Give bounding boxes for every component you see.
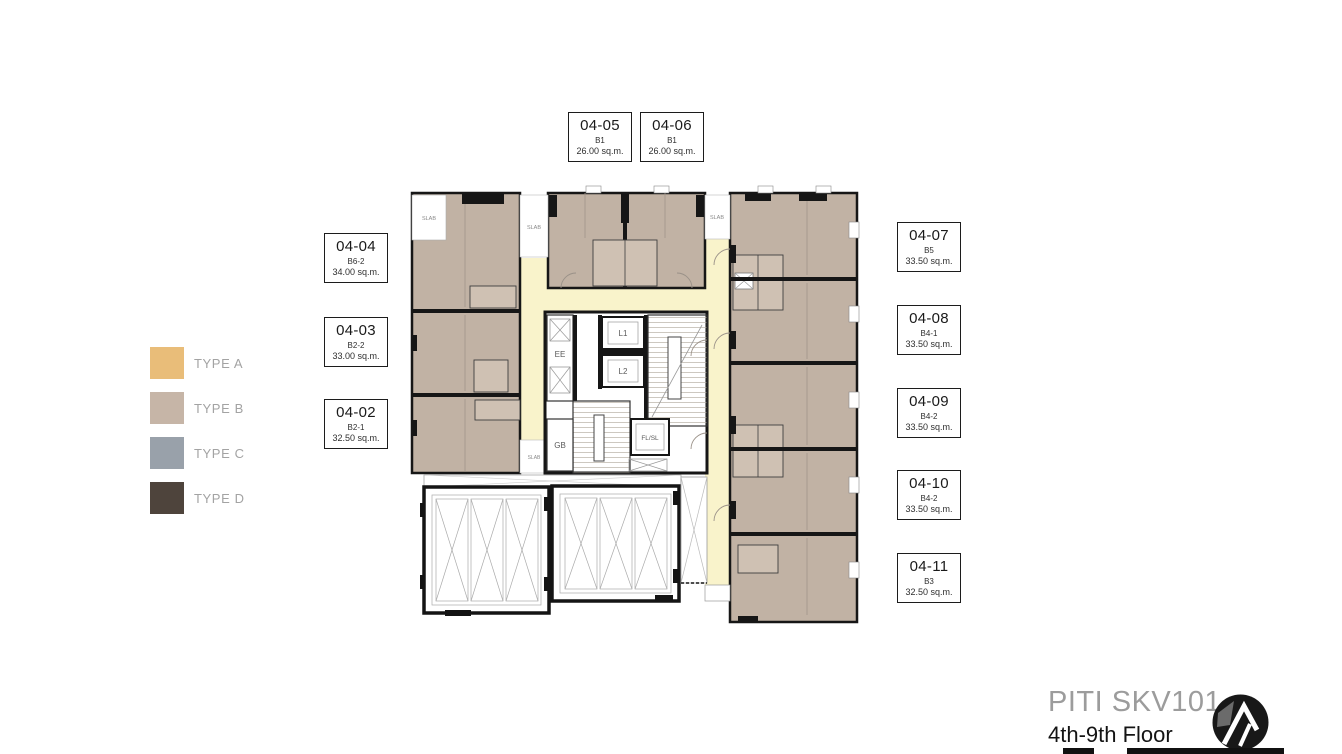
unit-area: 33.50 sq.m.	[900, 339, 958, 349]
unit-callout-04-06: 04-06 B1 26.00 sq.m.	[640, 112, 704, 162]
ee-shaft-label: EE	[555, 350, 566, 359]
unit-area: 33.50 sq.m.	[900, 504, 958, 514]
unit-callout-04-03: 04-03 B2-2 33.00 sq.m.	[324, 317, 388, 367]
unit-area: 32.50 sq.m.	[327, 433, 385, 443]
unit-area: 33.50 sq.m.	[900, 256, 958, 266]
unit-id: 04-07	[900, 227, 958, 244]
unit-area: 26.00 sq.m.	[571, 146, 629, 156]
unit-callout-04-05: 04-05 B1 26.00 sq.m.	[568, 112, 632, 162]
floor-plan-drawing: SLAB	[405, 185, 870, 630]
unit-id: 04-06	[643, 117, 701, 134]
unit-type: B1	[643, 136, 701, 145]
lift-1-label: L1	[619, 329, 628, 338]
unit-type: B4-2	[900, 494, 958, 503]
unit-id: 04-11	[900, 558, 958, 575]
unit-type: B6-2	[327, 257, 385, 266]
slab-label: SLAB	[710, 215, 724, 221]
footer-bar	[1063, 748, 1094, 754]
unit-id: 04-05	[571, 117, 629, 134]
legend: TYPE A TYPE B TYPE C TYPE D	[150, 347, 245, 527]
unit-area: 33.00 sq.m.	[327, 351, 385, 361]
unit-callout-04-04: 04-04 B6-2 34.00 sq.m.	[324, 233, 388, 283]
void-room-right	[552, 486, 679, 601]
footer: PITI SKV101 4th-9th Floor	[1048, 686, 1221, 748]
legend-item-type-a: TYPE A	[150, 347, 245, 379]
unit-callout-04-02: 04-02 B2-1 32.50 sq.m.	[324, 399, 388, 449]
slab-label: SLAB	[422, 216, 436, 222]
unit-id: 04-10	[900, 475, 958, 492]
unit-callout-04-08: 04-08 B4-1 33.50 sq.m.	[897, 305, 961, 355]
unit-block-top-middle	[548, 186, 705, 288]
unit-type: B2-2	[327, 341, 385, 350]
legend-item-type-c: TYPE C	[150, 437, 245, 469]
unit-area: 26.00 sq.m.	[643, 146, 701, 156]
legend-label: TYPE B	[194, 401, 244, 416]
type-b-swatch	[150, 392, 184, 424]
unit-type: B4-2	[900, 412, 958, 421]
unit-id: 04-09	[900, 393, 958, 410]
type-c-swatch	[150, 437, 184, 469]
gb-room-label: GB	[554, 441, 566, 450]
floorplan-page: TYPE A TYPE B TYPE C TYPE D	[0, 0, 1342, 754]
slab-label: SLAB	[527, 225, 541, 231]
brand-logo-icon	[1212, 694, 1269, 751]
project-title: PITI SKV101	[1048, 686, 1221, 719]
unit-id: 04-04	[327, 238, 385, 255]
unit-area: 33.50 sq.m.	[900, 422, 958, 432]
unit-type: B2-1	[327, 423, 385, 432]
legend-item-type-d: TYPE D	[150, 482, 245, 514]
slab-label: SLAB	[528, 455, 541, 461]
type-d-swatch	[150, 482, 184, 514]
lift-2-label: L2	[619, 367, 628, 376]
legend-label: TYPE D	[194, 491, 245, 506]
footer-bar	[1127, 748, 1284, 754]
unit-callout-04-10: 04-10 B4-2 33.50 sq.m.	[897, 470, 961, 520]
fl-sl-shaft-label: FL/SL	[641, 435, 659, 442]
unit-area: 34.00 sq.m.	[327, 267, 385, 277]
unit-id: 04-03	[327, 322, 385, 339]
legend-label: TYPE A	[194, 356, 243, 371]
unit-type: B1	[571, 136, 629, 145]
unit-id: 04-02	[327, 404, 385, 421]
unit-block-right-wing	[714, 186, 859, 622]
unit-area: 32.50 sq.m.	[900, 587, 958, 597]
unit-block-left-wing: SLAB	[412, 193, 520, 473]
unit-type: B4-1	[900, 329, 958, 338]
building-core: EE L1 L2 GB FL/SL	[545, 312, 707, 473]
unit-callout-04-11: 04-11 B3 32.50 sq.m.	[897, 553, 961, 603]
unit-type: B5	[900, 246, 958, 255]
unit-callout-04-07: 04-07 B5 33.50 sq.m.	[897, 222, 961, 272]
floor-range: 4th-9th Floor	[1048, 722, 1221, 748]
type-a-swatch	[150, 347, 184, 379]
legend-item-type-b: TYPE B	[150, 392, 245, 424]
legend-label: TYPE C	[194, 446, 245, 461]
unit-id: 04-08	[900, 310, 958, 327]
unit-type: B3	[900, 577, 958, 586]
unit-callout-04-09: 04-09 B4-2 33.50 sq.m.	[897, 388, 961, 438]
